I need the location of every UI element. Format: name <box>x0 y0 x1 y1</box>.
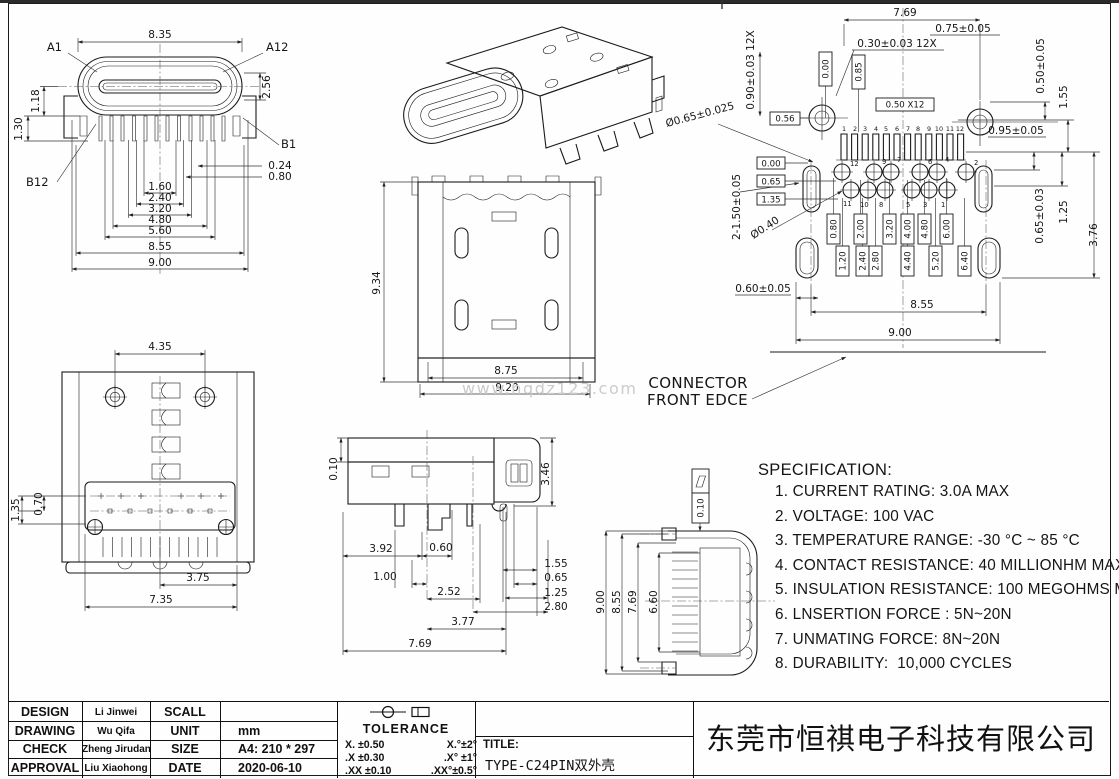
engineering-drawing-page: 8.35 A1 A12 2.56 1.18 1.30 B1 B12 0.24 0… <box>0 0 1119 779</box>
pin-label-b12: B12 <box>26 175 49 189</box>
front-edge-note-line2: FRONT EDCE <box>647 391 748 409</box>
dim-label: 9.00 <box>595 590 607 613</box>
dim-label: 1.20 <box>839 251 849 270</box>
dim-label: 0.65 <box>544 572 567 584</box>
dim-label: 4.40 <box>904 251 914 270</box>
dim-label: 3.46 <box>540 462 552 486</box>
dim-label: 0.75±0.05 <box>935 23 991 35</box>
dim-label: 3.20 <box>886 219 896 238</box>
th-number: 4 <box>945 156 949 164</box>
th-number: 12 <box>850 160 859 168</box>
specification-title: SPECIFICATION: <box>758 461 1114 480</box>
tolerance-linear: .X ±0.30 <box>345 752 384 764</box>
table-line <box>8 721 337 722</box>
dim-label: 1.30 <box>13 117 25 140</box>
row-field: DATE <box>150 761 220 775</box>
row-value: 2020-06-10 <box>238 761 302 775</box>
dim-label: Ø0.65±0.025 <box>664 100 735 130</box>
row-label: CHECK <box>8 742 82 756</box>
dim-label: 0.60±0.05 <box>735 283 791 295</box>
dim-label: 2.40 <box>859 251 869 270</box>
dim-label: 0.95±0.05 <box>988 125 1044 137</box>
table-line <box>8 758 337 759</box>
dim-label: 0.30±0.03 12X <box>857 38 936 50</box>
company-name: 东莞市恒祺电子科技有限公司 <box>693 702 1109 778</box>
spec-item: 3. TEMPERATURE RANGE: -30 °C ~ 85 °C <box>758 529 1114 554</box>
dim-label: 6.00 <box>943 219 953 238</box>
spec-item: 7. UNMATING FORCE: 8N~20N <box>758 628 1114 653</box>
tolerance-angular: .X° ±1° <box>444 752 477 764</box>
pad-number: 10 <box>935 125 943 133</box>
drawing-title: TYPE-C24PIN双外壳 <box>485 754 615 774</box>
dim-label: 2.80 <box>872 251 882 270</box>
front-view: 8.35 A1 A12 2.56 1.18 1.30 B1 B12 0.24 0… <box>13 29 296 274</box>
row-name: Li Jinwei <box>82 707 150 718</box>
spec-item: 2. VOLTAGE: 100 VAC <box>758 505 1114 530</box>
dim-label: 8.35 <box>148 29 171 41</box>
dim-label: 8.75 <box>494 365 517 377</box>
top-view: 4.35 1.35 0.70 3.75 7.35 <box>10 341 254 611</box>
th-number: 3 <box>923 201 927 209</box>
spec-item: 6. LNSERTION FORCE : 5N~20N <box>758 603 1114 628</box>
dim-label: 6.40 <box>961 251 971 270</box>
dim-label: 9.34 <box>371 271 383 295</box>
dim-label: 0.85 <box>855 62 865 81</box>
row-value: mm <box>238 724 260 738</box>
dim-label: 1.25 <box>1058 200 1070 223</box>
dim-label: 0.70 <box>33 492 45 515</box>
pad-number: 5 <box>884 125 888 133</box>
pad-number: 3 <box>863 125 867 133</box>
dim-label: Ø0.40 <box>748 214 781 241</box>
title-label: TITLE: <box>483 739 519 751</box>
dim-label: 8.55 <box>910 299 933 311</box>
pad-number: 2 <box>853 125 857 133</box>
rotated-view: 0.10 9.00 8.55 7.69 6.60 <box>595 469 775 675</box>
row-field: SIZE <box>150 742 220 756</box>
pad-number: 8 <box>916 125 920 133</box>
profile-view: 0.10 3.46 3.92 0.60 1.00 2.52 3.77 7.69 … <box>328 430 568 655</box>
dim-label: 1.35 <box>10 498 22 521</box>
row-value: A4: 210 * 297 <box>238 742 315 756</box>
dim-label: 2.56 <box>261 75 273 99</box>
front-edge-note-line1: CONNECTOR <box>648 374 748 392</box>
dim-label: 0.10 <box>328 457 340 480</box>
dim-label: 4.80 <box>921 219 931 238</box>
row-label: DESIGN <box>8 705 82 719</box>
pin-label-a1: A1 <box>47 40 62 54</box>
th-number: 10 <box>860 201 869 209</box>
th-number: 7 <box>897 156 901 164</box>
dim-label: 7.69 <box>627 590 639 613</box>
th-number: 11 <box>843 200 852 208</box>
tolerance-angular: X.°±2° <box>447 739 477 751</box>
dim-label: 5.60 <box>148 225 171 237</box>
pad-number: 9 <box>927 125 931 133</box>
dim-label: 7.69 <box>893 7 916 19</box>
row-label: DRAWING <box>8 724 82 738</box>
flatness-value: 0.10 <box>697 498 707 517</box>
dim-label: 1.00 <box>373 571 396 583</box>
watermark: www.hqdz123.com <box>462 379 638 398</box>
spec-item: 8. DURABILITY: 10,000 CYCLES <box>758 652 1114 677</box>
projection-symbol-icon <box>368 704 444 720</box>
row-label: APPROVAL <box>8 761 82 775</box>
dim-label: 0.90±0.03 12X <box>745 30 757 109</box>
spec-item: 4. CONTACT RESISTANCE: 40 MILLIONHM MAX <box>758 554 1114 579</box>
row-field: SCALL <box>150 705 220 719</box>
dim-label: 2.00 <box>857 219 867 238</box>
dim-label: 0.50 X12 <box>886 101 925 111</box>
dim-label: 7.69 <box>408 638 431 650</box>
pin-label-a12: A12 <box>266 40 289 54</box>
title-block: DESIGN Li Jinwei SCALL DRAWING Wu Qifa U… <box>8 701 1109 778</box>
pad-number: 1 <box>842 125 846 133</box>
dim-label: 1.55 <box>1058 85 1070 108</box>
dim-label: 3.75 <box>186 572 209 584</box>
dim-label: 0.56 <box>775 115 794 125</box>
dim-label: 3.92 <box>369 543 392 555</box>
pad-number: 12 <box>956 125 964 133</box>
pin-label-b1: B1 <box>281 137 296 151</box>
spring-clips <box>152 383 180 479</box>
dim-label: 1.18 <box>30 89 42 112</box>
dim-label: 8.55 <box>611 590 623 613</box>
dim-label: 0.00 <box>761 160 780 170</box>
dim-label: 8.55 <box>148 241 171 253</box>
spec-item: 1. CURRENT RATING: 3.0A MAX <box>758 480 1114 505</box>
dim-label: 6.60 <box>648 590 660 613</box>
isometric-view <box>397 21 664 164</box>
row-name: Zheng Jirudan <box>82 744 150 755</box>
dim-label: 1.55 <box>544 558 567 570</box>
dim-label: 1.25 <box>544 587 567 599</box>
dim-label: 5.20 <box>932 251 942 270</box>
pad-number: 4 <box>874 125 878 133</box>
row-name: Liu Xiaohong <box>82 763 150 774</box>
th-number: 2 <box>974 159 978 167</box>
th-number: 1 <box>941 201 945 209</box>
dim-label: 4.00 <box>904 219 914 238</box>
dim-label: 9.00 <box>888 327 911 339</box>
table-line <box>475 736 693 737</box>
side-view: 9.34 8.75 9.20 www.hqdz123.com <box>371 176 638 398</box>
dim-label: 7.35 <box>149 594 172 606</box>
dim-label: 0.80 <box>830 219 840 238</box>
dim-label: 0.65 <box>761 178 780 188</box>
pad-number: 7 <box>906 125 910 133</box>
dim-label: 2.52 <box>437 586 460 598</box>
pad-number: 11 <box>946 125 954 133</box>
specification-block: SPECIFICATION: 1. CURRENT RATING: 3.0A M… <box>758 461 1114 677</box>
footprint-view: 7.69 0.75±0.05 0.30±0.03 12X 0.90±0.03 1… <box>647 7 1100 409</box>
pad-number: 6 <box>895 125 899 133</box>
dim-label: 3.77 <box>451 616 474 628</box>
row-field: UNIT <box>150 724 220 738</box>
tolerance-title: TOLERANCE <box>337 722 475 736</box>
dim-label: 1.35 <box>761 196 780 206</box>
table-line <box>8 740 337 741</box>
spec-item: 5. INSULATION RESISTANCE: 100 MEGOHMS MI… <box>758 578 1114 603</box>
dim-label: 2-1.50±0.05 <box>731 174 743 240</box>
tolerance-angular: .XX°±0.5° <box>431 765 477 777</box>
dim-label: 0.50±0.05 <box>1035 38 1047 94</box>
dim-label: 0.60 <box>429 542 452 554</box>
dim-label: 4.35 <box>148 341 171 353</box>
dim-label: 9.00 <box>148 257 171 269</box>
th-number: 6 <box>928 158 932 166</box>
dim-label: 0.00 <box>822 59 832 78</box>
dim-label: 0.65±0.03 <box>1034 188 1046 244</box>
th-number: 8 <box>879 201 883 209</box>
dim-label: 3.76 <box>1088 223 1100 247</box>
dim-label: 0.80 <box>268 171 291 183</box>
row-name: Wu Qifa <box>82 726 150 737</box>
dim-label: 2.80 <box>544 601 567 613</box>
tolerance-linear: .XX ±0.10 <box>345 765 391 777</box>
th-number: 5 <box>906 201 910 209</box>
table-line <box>337 702 338 778</box>
th-number: 9 <box>882 158 886 166</box>
tolerance-linear: X. ±0.50 <box>345 739 384 751</box>
